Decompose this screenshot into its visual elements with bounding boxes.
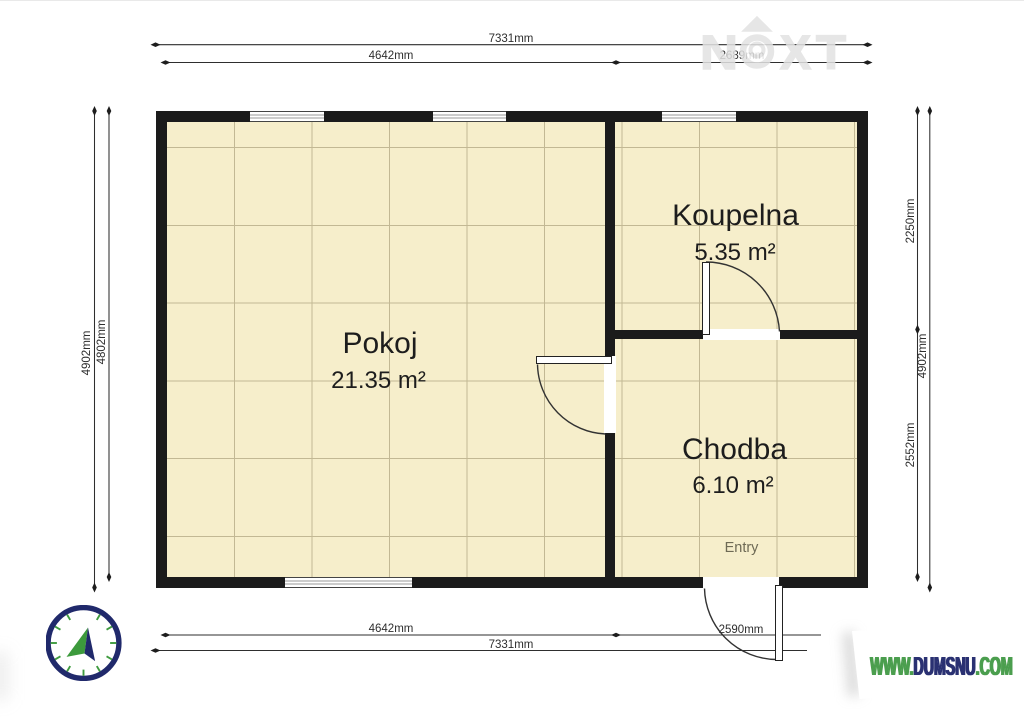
svg-text:X: X: [780, 27, 811, 80]
svg-text:WWW.DUMSNU.COM: WWW.DUMSNU.COM: [871, 653, 1013, 682]
svg-text:T: T: [816, 27, 846, 80]
svg-text:N: N: [700, 27, 738, 80]
